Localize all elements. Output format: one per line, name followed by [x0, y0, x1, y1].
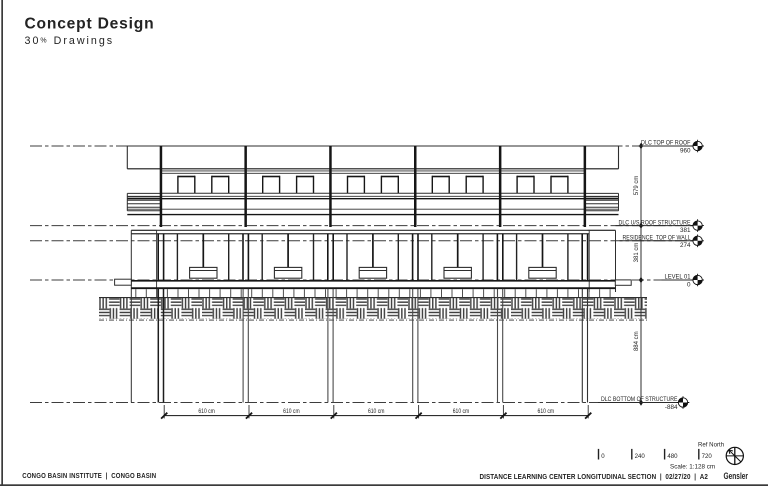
- svg-text:381: 381: [680, 227, 691, 234]
- svg-text:Ref North: Ref North: [698, 441, 724, 448]
- svg-text:Gensler: Gensler: [724, 471, 749, 481]
- svg-text:720: 720: [702, 453, 713, 460]
- svg-text:Scale: 1:128 cm: Scale: 1:128 cm: [670, 464, 715, 471]
- svg-text:884 cm: 884 cm: [634, 331, 640, 351]
- svg-text:DISTANCE LEARNING CENTER LONGI: DISTANCE LEARNING CENTER LONGITUDINAL SE…: [480, 473, 709, 481]
- svg-text:610 cm: 610 cm: [283, 409, 300, 415]
- svg-text:DLC U/S ROOF STRUCTURE: DLC U/S ROOF STRUCTURE: [619, 219, 691, 226]
- svg-text:381 cm: 381 cm: [634, 243, 640, 263]
- svg-text:610 cm: 610 cm: [198, 409, 215, 415]
- svg-text:Concept Design: Concept Design: [25, 16, 155, 33]
- svg-text:-884: -884: [665, 404, 678, 411]
- svg-text:CONGO BASIN INSTITUTE | CONG: CONGO BASIN INSTITUTE | CONGO BASIN: [22, 473, 156, 480]
- svg-text:610 cm: 610 cm: [453, 409, 470, 415]
- svg-text:610 cm: 610 cm: [368, 409, 385, 415]
- svg-text:LEVEL 01: LEVEL 01: [665, 274, 691, 281]
- svg-text:30% Drawings: 30% Drawings: [25, 35, 115, 47]
- svg-text:0: 0: [687, 281, 691, 288]
- svg-text:274: 274: [680, 242, 691, 249]
- svg-text:0: 0: [601, 453, 605, 460]
- svg-text:960: 960: [680, 147, 691, 154]
- svg-text:480: 480: [667, 453, 678, 460]
- svg-text:DLC BOTTOM OF STRUCTURE: DLC BOTTOM OF STRUCTURE: [601, 396, 678, 403]
- svg-text:DLC TOP OF ROOF: DLC TOP OF ROOF: [641, 140, 691, 147]
- svg-text:RESIDENCE_TOP OF WALL: RESIDENCE_TOP OF WALL: [623, 235, 691, 242]
- svg-text:579 cm: 579 cm: [634, 176, 640, 196]
- svg-text:610 cm: 610 cm: [538, 409, 555, 415]
- svg-text:240: 240: [635, 453, 646, 460]
